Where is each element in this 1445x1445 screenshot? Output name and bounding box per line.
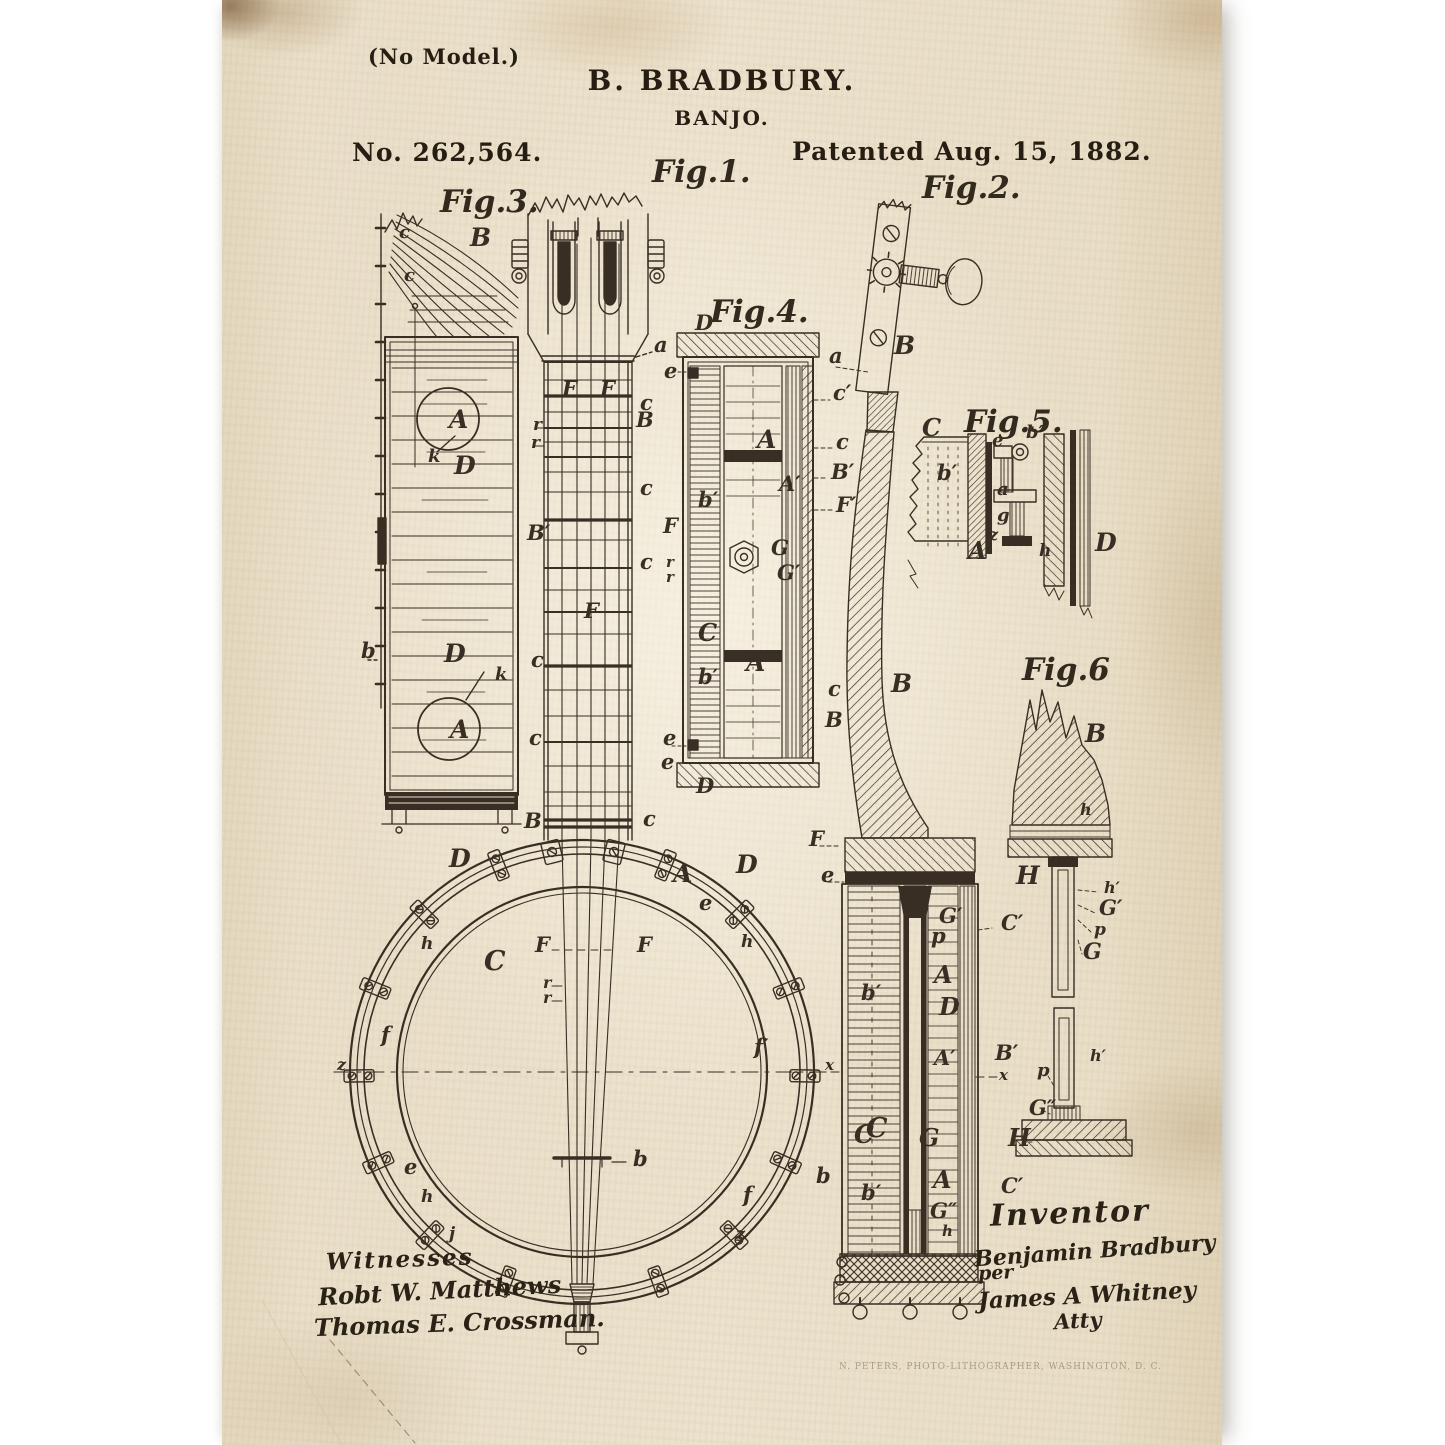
part-label: z <box>336 1055 347 1074</box>
part-label: A <box>755 425 776 454</box>
part-label: c <box>640 475 653 500</box>
part-label: G″ <box>1029 1095 1057 1120</box>
part-label: c′ <box>833 380 852 405</box>
part-label: D <box>1094 528 1117 557</box>
part-label: k <box>428 446 440 467</box>
screenshot-canvas: (No Model.) B. BRADBURY. BANJO. No. 262,… <box>0 0 1445 1445</box>
part-label: c <box>643 806 656 831</box>
part-label: B′ <box>994 1040 1019 1065</box>
part-label: a <box>997 479 1009 500</box>
part-label: F <box>599 376 617 401</box>
part-label: e <box>663 725 676 750</box>
part-label: e <box>404 1154 417 1179</box>
part-label: h <box>1039 541 1051 561</box>
fig3-rim-developed-view: Fig.3.cBcAkDbDkA <box>361 184 539 833</box>
fig3-label: Fig.3. <box>439 184 539 220</box>
part-label: h <box>421 1187 433 1207</box>
part-label: A′ <box>777 471 801 496</box>
part-label: D <box>448 844 471 873</box>
part-label: x <box>824 1056 835 1074</box>
part-label: C <box>698 618 717 647</box>
part-label: p <box>1037 1060 1050 1081</box>
part-label: F <box>583 598 601 623</box>
part-label: h′ <box>1090 1046 1107 1065</box>
part-label: c <box>399 222 410 243</box>
part-label: F <box>662 513 680 538</box>
part-label: j <box>446 1224 456 1244</box>
part-label: a <box>829 343 843 368</box>
part-label: B <box>469 223 491 252</box>
part-label: C <box>922 413 941 442</box>
part-label: c <box>529 725 542 750</box>
part-label: f <box>379 1022 394 1047</box>
part-label: A′ <box>932 1045 956 1070</box>
part-label: b′ <box>861 980 882 1005</box>
part-label: e <box>664 358 677 383</box>
fig4-rim-cross-section: Fig.4.Dc′AcA′B′F′FGrG′rb′Cb′AcBeeD <box>661 294 857 798</box>
part-label: z <box>988 525 999 544</box>
part-label: c <box>828 676 841 701</box>
part-label: G <box>919 1123 940 1152</box>
part-label: r <box>543 988 553 1007</box>
part-label: e <box>992 430 1003 451</box>
fig6-heel-rod-detail: Fig.6BhHh′G′pGh′pG″H <box>1007 652 1132 1156</box>
part-label: h <box>421 934 433 954</box>
part-label: B <box>890 669 912 698</box>
inventor-per: per <box>977 1261 1013 1285</box>
part-label: D <box>938 992 960 1021</box>
attorney-title: Atty <box>1053 1307 1102 1334</box>
part-label: D <box>453 451 476 480</box>
part-label: A <box>448 715 469 744</box>
part-label: e <box>699 890 712 915</box>
part-label: F <box>561 376 579 401</box>
part-label: c <box>404 265 415 286</box>
part-label: a <box>654 332 668 357</box>
part-label: F <box>636 932 654 957</box>
part-label: B <box>523 808 542 833</box>
part-label: C <box>854 1120 874 1149</box>
fig6-label: Fig.6 <box>1021 652 1110 688</box>
fig2-label: Fig.2. <box>921 170 1021 206</box>
part-label: A <box>744 648 765 677</box>
part-label: H <box>1015 861 1041 890</box>
part-label: G <box>1083 939 1102 965</box>
part-label: A <box>931 1165 952 1194</box>
part-label: A <box>966 536 987 565</box>
part-label: C <box>484 946 506 977</box>
part-label: C′ <box>1001 1173 1024 1198</box>
part-label: D <box>735 850 758 879</box>
part-label: H <box>1007 1123 1032 1152</box>
fig2-banjo-side-section: Fig.2.BaBFeG′pC′Ab′DA′B′xxCGbb′AC′G″h <box>808 170 1024 1319</box>
part-label: B <box>1084 719 1106 748</box>
part-label: f′ <box>752 1034 769 1059</box>
part-label: C′ <box>1001 910 1024 935</box>
part-label: F′ <box>835 492 857 517</box>
part-label: b <box>816 1163 831 1188</box>
part-label: x <box>998 1066 1009 1084</box>
part-label: r <box>531 433 541 453</box>
part-label: g <box>997 505 1010 526</box>
part-label: D <box>443 639 466 668</box>
fig5-label: Fig.5. <box>963 404 1063 440</box>
fig4-label: Fig.4. <box>709 294 809 330</box>
part-label: B′ <box>526 520 551 545</box>
part-label: A <box>447 405 468 434</box>
part-label: c <box>531 647 544 672</box>
part-label: r <box>533 415 543 435</box>
part-label: z <box>735 1224 746 1243</box>
part-label: D <box>694 310 714 335</box>
part-label: B <box>635 407 654 432</box>
part-label: G <box>771 535 789 560</box>
part-label: h <box>1080 800 1092 819</box>
part-label: b′ <box>698 664 719 689</box>
part-label: h <box>942 1222 953 1240</box>
part-label: A <box>932 960 953 989</box>
part-label: c <box>836 429 849 454</box>
part-label: c <box>640 549 653 574</box>
part-label: e <box>661 749 674 774</box>
part-label: F <box>808 826 826 851</box>
part-label: G″ <box>930 1198 958 1223</box>
part-label: A <box>671 859 692 888</box>
part-label: e <box>821 862 834 887</box>
fig5-bracket-detail: Fig.5.Ceb″b′agzAhD <box>908 404 1117 618</box>
part-label: D <box>695 773 715 798</box>
inventor-heading: Inventor <box>989 1193 1150 1234</box>
part-label: b′ <box>698 487 719 512</box>
part-label: b′ <box>861 1180 882 1205</box>
part-label: r <box>666 568 675 586</box>
part-label: B <box>893 331 915 360</box>
fig1-label: Fig.1. <box>651 154 751 190</box>
part-label: p <box>931 923 946 948</box>
part-label: k <box>495 664 507 685</box>
part-label: B′ <box>830 459 855 484</box>
part-label: f <box>741 1182 756 1207</box>
part-label: p <box>1094 920 1106 940</box>
part-label: F <box>534 932 552 957</box>
part-label: h <box>741 932 753 952</box>
printer-line: N. PETERS, PHOTO-LITHOGRAPHER, WASHINGTO… <box>222 1362 1162 1372</box>
patent-page: (No Model.) B. BRADBURY. BANJO. No. 262,… <box>222 0 1222 1445</box>
part-label: G′ <box>1099 895 1123 920</box>
part-label: B <box>824 707 843 732</box>
part-label: b′ <box>937 460 958 485</box>
witnesses-heading: Witnesses <box>326 1243 474 1275</box>
part-label: G′ <box>777 560 801 585</box>
part-label: b″ <box>1026 422 1047 443</box>
part-label: b <box>633 1146 648 1171</box>
part-label: b <box>361 638 376 663</box>
